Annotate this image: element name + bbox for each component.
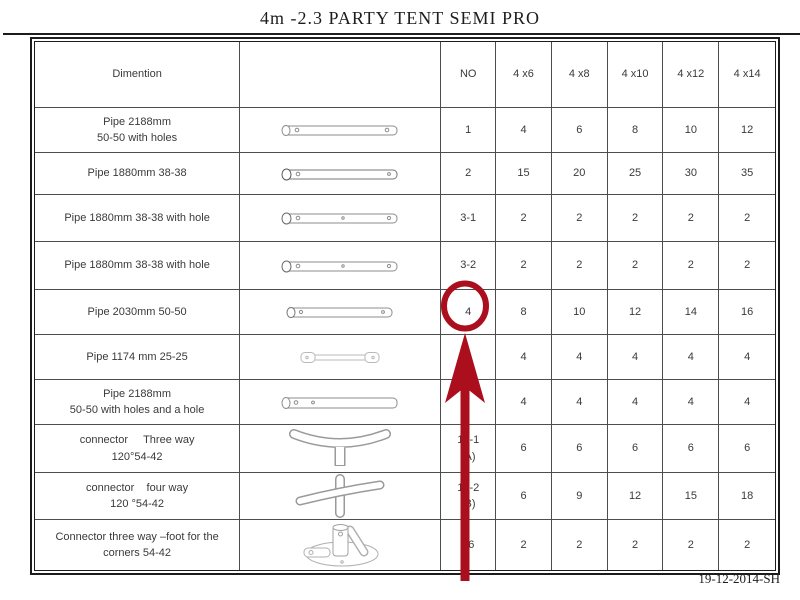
dimension-cell: Pipe 2188mm 50-50 with holes [35,108,240,152]
qty-cell: 2 [496,195,552,241]
qty-cell: 6 [719,425,775,472]
table-row: Pipe 1880mm 38-38 with hole 3-2 2 2 2 2 … [35,242,775,290]
table-row: Connector three way –foot for the corner… [35,520,775,570]
header-size: 4 x6 [496,42,552,107]
table-row: Pipe 1174 mm 25-25 4 4 4 4 4 [35,335,775,380]
dimension-cell: Pipe 2188mm 50-50 with holes and a hole [35,380,240,424]
qty-cell: 6 [496,425,552,472]
table-row: Pipe 2188mm 50-50 with holes 1 4 6 8 10 … [35,108,775,153]
qty-cell: 2 [608,520,664,570]
qty-cell: 25 [608,153,664,194]
qty-cell: 2 [663,242,719,289]
qty-cell: 9 [552,473,608,519]
qty-cell: 30 [663,153,719,194]
part-image-cell [240,290,441,334]
qty-cell: 4 [496,335,552,379]
qty-cell: 2 [496,520,552,570]
dimension-cell: Pipe 1880mm 38-38 with hole [35,242,240,289]
header-size: 4 x8 [552,42,608,107]
three-way-connector-icon [280,426,400,472]
table-row: Pipe 2030mm 50-50 4 8 10 12 14 16 [35,290,775,335]
part-image-cell [240,335,441,379]
qty-cell: 2 [719,520,775,570]
qty-cell: 14 [663,290,719,334]
header-dimension: Dimention [35,42,240,107]
part-image-cell [240,153,441,194]
qty-cell: 2 [719,242,775,289]
qty-cell: 4 [496,380,552,424]
qty-cell: 2 [663,195,719,241]
no-cell: 2 [441,153,496,194]
qty-cell: 6 [496,473,552,519]
dimension-cell: Pipe 1174 mm 25-25 [35,335,240,379]
pipe-with-holes-icon [277,120,403,140]
header-size: 4 x12 [663,42,719,107]
dimension-cell: Pipe 1880mm 38-38 [35,153,240,194]
dimension-cell: connector four way 120 °54-42 [35,473,240,519]
qty-cell: 6 [608,425,664,472]
page-title: 4m -2.3 PARTY TENT SEMI PRO [0,8,800,29]
qty-cell: 6 [552,425,608,472]
qty-cell: 4 [608,335,664,379]
qty-cell: 10 [663,108,719,152]
part-image-cell [240,242,441,289]
qty-cell: 10 [552,290,608,334]
part-image-cell [240,425,441,472]
pipe-with-hole-icon [282,302,398,322]
qty-cell: 12 [608,473,664,519]
qty-cell: 2 [552,195,608,241]
qty-cell: 18 [719,473,775,519]
no-cell-circled: 4 [441,290,496,334]
qty-cell: 2 [663,520,719,570]
no-cell [441,335,496,379]
qty-cell: 2 [552,520,608,570]
pipe-with-hole-icon [277,256,403,276]
table-row: Pipe 1880mm 38-38 2 15 20 25 30 35 [35,153,775,195]
qty-cell: 2 [719,195,775,241]
part-image-cell [240,473,441,519]
foot-connector-icon [280,520,400,570]
qty-cell: 2 [608,242,664,289]
qty-cell: 4 [719,335,775,379]
qty-cell: 8 [608,108,664,152]
document-page: 4m -2.3 PARTY TENT SEMI PRO Dimention NO… [0,0,800,600]
no-cell: 16 [441,520,496,570]
qty-cell: 6 [663,425,719,472]
part-image-cell [240,195,441,241]
qty-cell: 4 [552,380,608,424]
date-stamp: 19-12-2014-SH [698,571,780,587]
dimension-cell: connector Three way 120°54-42 [35,425,240,472]
qty-cell: 4 [496,108,552,152]
qty-cell: 4 [663,380,719,424]
four-way-connector-icon [280,473,400,519]
qty-cell: 15 [663,473,719,519]
dimension-cell: Pipe 1880mm 38-38 with hole [35,195,240,241]
no-cell [441,380,496,424]
qty-cell: 4 [663,335,719,379]
table-header-row: Dimention NO 4 x6 4 x8 4 x10 4 x12 4 x14 [35,42,775,108]
qty-cell: 35 [719,153,775,194]
no-cell: 15-2 (B) [441,473,496,519]
qty-cell: 4 [552,335,608,379]
qty-cell: 12 [608,290,664,334]
header-size: 4 x14 [719,42,775,107]
part-image-cell [240,520,441,570]
dimension-cell: Connector three way –foot for the corner… [35,520,240,570]
table-row: connector four way 120 °54-42 15-2 (B) 6… [35,473,775,520]
table-row: connector Three way 120°54-42 15-1 (A) 6… [35,425,775,473]
qty-cell: 4 [608,380,664,424]
qty-cell: 2 [608,195,664,241]
qty-cell: 20 [552,153,608,194]
short-pipe-icon [295,347,385,367]
part-image-cell [240,380,441,424]
pipe-with-hole-icon [277,208,403,228]
qty-cell: 6 [552,108,608,152]
no-cell: 3-2 [441,242,496,289]
no-cell: 1 [441,108,496,152]
qty-cell: 16 [719,290,775,334]
parts-table: Dimention NO 4 x6 4 x8 4 x10 4 x12 4 x14… [30,37,780,575]
pipe-with-holes-and-hole-icon [277,392,403,412]
no-cell: 3-1 [441,195,496,241]
qty-cell: 12 [719,108,775,152]
no-cell: 15-1 (A) [441,425,496,472]
table-row: Pipe 1880mm 38-38 with hole 3-1 2 2 2 2 … [35,195,775,242]
header-image [240,42,441,107]
title-divider [3,33,800,35]
part-image-cell [240,108,441,152]
dimension-cell: Pipe 2030mm 50-50 [35,290,240,334]
table-row: Pipe 2188mm 50-50 with holes and a hole … [35,380,775,425]
header-size: 4 x10 [608,42,664,107]
pipe-plain-icon [277,164,403,184]
qty-cell: 15 [496,153,552,194]
header-no: NO [441,42,496,107]
qty-cell: 2 [552,242,608,289]
qty-cell: 4 [719,380,775,424]
qty-cell: 8 [496,290,552,334]
qty-cell: 2 [496,242,552,289]
